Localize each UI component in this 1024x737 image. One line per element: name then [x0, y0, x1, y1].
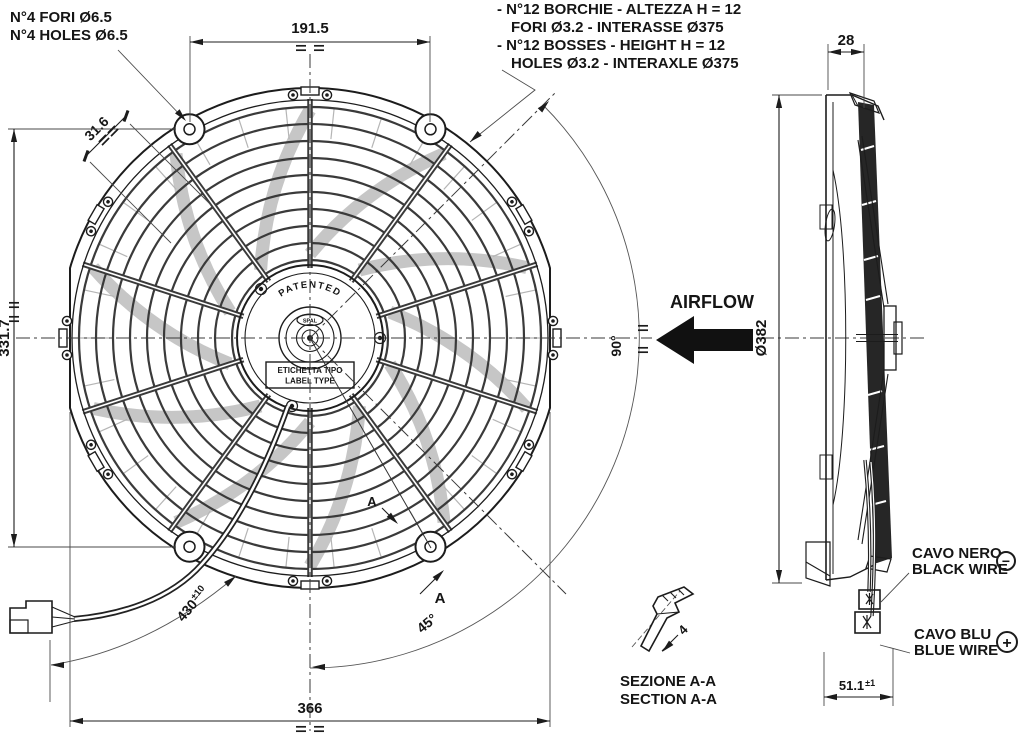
boss-hole-center	[65, 353, 69, 357]
arrowhead	[851, 49, 864, 55]
dim-value: Ø382	[753, 320, 770, 357]
section-marker-inner: A	[367, 494, 377, 509]
equal-tick	[296, 727, 306, 731]
section-title-it: SEZIONE A-A	[620, 673, 716, 690]
equal-tick	[296, 46, 306, 50]
boss-hole-center	[325, 579, 329, 583]
dim-wire-length: 430±10	[50, 576, 236, 702]
ear-hole	[184, 124, 195, 135]
bosses-note-line1: - N°12 BORCHIE - ALTEZZA H = 12	[497, 1, 741, 18]
black-wire-label-it: CAVO NERO	[912, 545, 1002, 562]
blue-wire-label-it: CAVO BLU	[914, 626, 991, 643]
holes-note-line2: N°4 HOLES Ø6.5	[10, 27, 128, 44]
dim-value: 430±10	[173, 583, 211, 624]
mounting-ear	[175, 532, 205, 562]
arrowhead	[51, 662, 64, 668]
terminal-offset-tolerance: ±1	[865, 678, 875, 688]
plus-symbol: +	[1002, 635, 1011, 652]
equal-tick	[108, 126, 118, 136]
leader-line-black-wire	[881, 573, 909, 602]
dim-value: 366	[297, 700, 322, 717]
minus-symbol: −	[1002, 553, 1010, 569]
mesh-tick	[472, 456, 497, 474]
dim-value: 28	[838, 32, 855, 49]
airflow-arrow-icon	[656, 316, 753, 364]
mesh-tick	[286, 108, 289, 139]
arrowhead	[312, 664, 325, 670]
arrowhead	[538, 99, 551, 113]
fan-blade	[310, 154, 444, 254]
ear-hole	[425, 124, 436, 135]
arrowhead	[776, 95, 782, 108]
airflow-annotation: AIRFLOW	[656, 292, 754, 364]
boss-tab	[516, 205, 532, 225]
top-cap-outline	[826, 95, 884, 120]
mesh-tick	[331, 108, 334, 139]
wire-labels: CAVO NERO BLACK WIRE − CAVO BLU BLUE WIR…	[880, 545, 1017, 659]
slash-terminator	[84, 151, 88, 162]
boss-hole-center	[325, 93, 329, 97]
arrowhead	[70, 718, 83, 724]
fan-front-view: PATENTED SPAL ETICHETTA TIPO LABEL TYPE	[10, 87, 574, 633]
hub-screw-dot	[259, 287, 263, 291]
mounting-ear	[416, 114, 446, 144]
boss-tab	[516, 452, 532, 472]
boss-tab	[88, 452, 104, 472]
leader-line-blue-wire	[880, 645, 910, 653]
boss-tab	[88, 205, 104, 225]
leader-line-holes-note	[118, 50, 184, 119]
mesh-tick	[123, 456, 148, 474]
technical-drawing-page: PATENTED SPAL ETICHETTA TIPO LABEL TYPE	[0, 0, 1024, 737]
extension-line	[90, 162, 171, 243]
boss-hole-center	[291, 93, 295, 97]
equal-tick	[314, 46, 324, 50]
angle-90-value: 90°	[608, 335, 624, 356]
mesh-tick	[331, 537, 334, 568]
connector-body	[10, 601, 52, 633]
blue-wire-label-en: BLUE WIRE	[914, 642, 998, 659]
slash-terminator	[124, 111, 128, 122]
arrowhead	[190, 39, 203, 45]
arrowhead	[880, 694, 893, 700]
terminal-blue-crimp	[863, 615, 871, 629]
connector-latch	[10, 620, 28, 633]
crimp-line	[52, 607, 75, 617]
power-wire	[10, 406, 288, 633]
black-wire-label-en: BLACK WIRE	[912, 561, 1008, 578]
bosses-note-line2: FORI Ø3.2 - INTERASSE Ø375	[511, 19, 724, 36]
drawing-canvas: PATENTED SPAL ETICHETTA TIPO LABEL TYPE	[0, 0, 1024, 737]
section-title-en: SECTION A-A	[620, 691, 717, 708]
dim-value: 331.7	[0, 319, 13, 357]
arrowhead	[776, 570, 782, 583]
boss-hole-center	[551, 353, 555, 357]
leader-line-bosses-note	[470, 70, 535, 142]
arrowhead	[11, 129, 17, 142]
airflow-label: AIRFLOW	[670, 292, 754, 312]
arrowhead	[824, 694, 837, 700]
crimp-line	[52, 621, 75, 627]
equal-tick	[99, 135, 109, 145]
terminal-offset-value: 51.1	[839, 678, 864, 693]
dim-depth: 28	[828, 32, 864, 108]
arrowhead	[468, 131, 482, 144]
mesh-tick	[286, 537, 289, 568]
arrowhead	[660, 641, 674, 655]
mesh-tick	[472, 202, 497, 220]
arrowhead	[417, 39, 430, 45]
mounting-ear	[175, 114, 205, 144]
arrowhead	[828, 49, 841, 55]
arrowhead	[11, 534, 17, 547]
bracket-profile	[641, 587, 693, 651]
boss-hole-center	[291, 579, 295, 583]
arrowhead	[537, 718, 550, 724]
dim-value: 51.1±1	[839, 678, 875, 693]
fan-blade	[359, 259, 526, 270]
dim-shroud-diameter: Ø382	[753, 95, 822, 583]
boss-hole-center	[551, 319, 555, 323]
mesh-tick	[123, 202, 148, 220]
section-marker-outer: A	[435, 590, 446, 607]
annotation-notes: N°4 FORI Ø6.5 N°4 HOLES Ø6.5 - N°12 BORC…	[10, 1, 741, 72]
bosses-note-line3: - N°12 BOSSES - HEIGHT H = 12	[497, 37, 725, 54]
angle-45-value: 45°	[414, 610, 441, 636]
equal-tick	[314, 727, 324, 731]
boss-hole-center	[65, 319, 69, 323]
bosses-note-line4: HOLES Ø3.2 - INTERAXLE Ø375	[511, 55, 739, 72]
dim-value: 191.5	[291, 20, 329, 37]
holes-note-line1: N°4 FORI Ø6.5	[10, 9, 112, 26]
fan-side-view	[806, 93, 902, 633]
ear-hole	[184, 541, 195, 552]
fan-blade	[93, 406, 260, 417]
crimp-line	[52, 617, 75, 619]
